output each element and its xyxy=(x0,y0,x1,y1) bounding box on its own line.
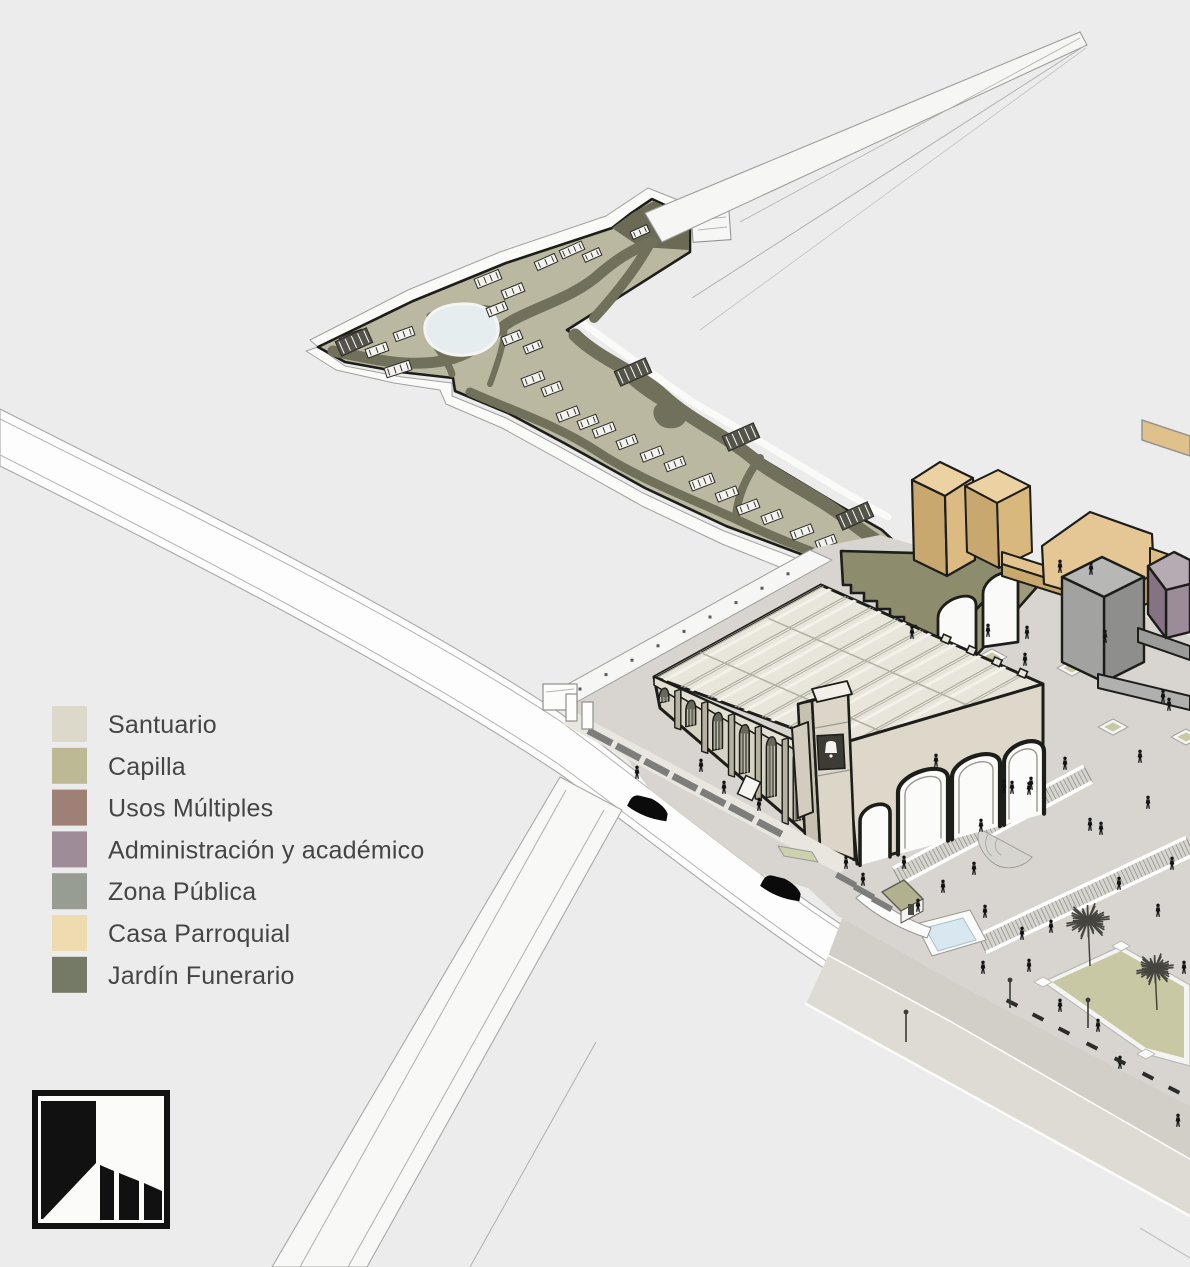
svg-text:Jardín Funerario: Jardín Funerario xyxy=(108,962,295,990)
svg-text:Zona Pública: Zona Pública xyxy=(108,878,256,906)
svg-text:Casa Parroquial: Casa Parroquial xyxy=(108,920,290,948)
svg-text:Capilla: Capilla xyxy=(108,753,186,781)
svg-text:Administración y académico: Administración y académico xyxy=(108,836,424,864)
svg-text:Santuario: Santuario xyxy=(108,711,217,739)
svg-text:Usos Múltiples: Usos Múltiples xyxy=(108,795,273,823)
